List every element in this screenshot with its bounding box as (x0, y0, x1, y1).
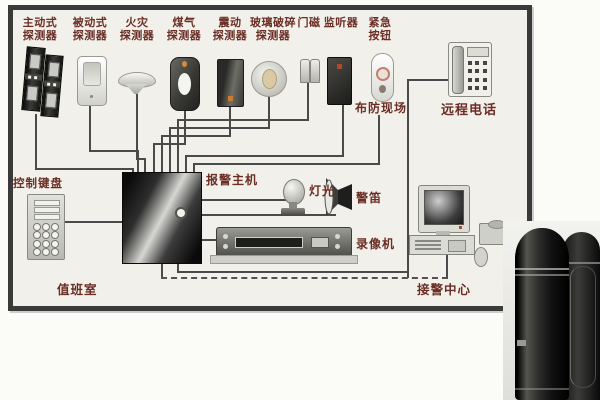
label-line: 震动 (219, 16, 242, 29)
label-line: 监听器 (324, 16, 359, 29)
pir-led (90, 95, 93, 98)
phone-display (467, 47, 489, 57)
keypad-display (34, 200, 60, 206)
beam-window (29, 54, 41, 70)
emergency-button-icon (371, 53, 394, 102)
label-line: 探测器 (23, 29, 58, 42)
wire (184, 106, 186, 143)
wire (185, 155, 344, 157)
case-drive-bay (448, 240, 466, 252)
wire (407, 79, 448, 81)
keypad-buttons (32, 223, 60, 256)
wire (185, 155, 187, 172)
wire (153, 143, 155, 172)
beam-detector-tower-front (515, 228, 569, 400)
mouse-icon (474, 247, 488, 267)
tower-label-plate (517, 340, 526, 346)
wire (161, 135, 163, 172)
label-control-keypad: 控制键盘 (13, 176, 63, 190)
label-line: 煤气 (173, 16, 196, 29)
label-line: 探测器 (256, 29, 291, 42)
beam-window (26, 85, 38, 101)
label-remote-phone: 远程电话 (441, 104, 497, 118)
beam-detector-photo (503, 221, 600, 400)
label-line: 紧急 (369, 16, 392, 29)
glass-break-detector-icon (251, 61, 287, 97)
alarm-host-knob (177, 209, 185, 217)
wire (342, 101, 344, 155)
wire (161, 135, 231, 137)
label-emergency-button: 紧急 按钮 (359, 16, 401, 42)
vcr-icon (216, 227, 352, 257)
label-duty-room: 值班室 (57, 283, 98, 297)
beam-band (25, 73, 42, 80)
pir-window (83, 62, 101, 86)
wire (89, 103, 91, 150)
vibration-detector-icon (217, 59, 244, 107)
case-vent (415, 240, 441, 242)
computer-case-icon (409, 235, 475, 255)
label-alarm-host: 报警主机 (206, 173, 258, 187)
vcr-tape-slot (235, 237, 303, 248)
monitor-screen (424, 190, 464, 225)
vibration-led (228, 96, 233, 101)
case-vent (415, 248, 441, 250)
vcr-panel (311, 237, 329, 248)
security-system-diagram: 主动式 探测器 被动式 探测器 火灾 探测器 煤气 探测器 震动 探测器 玻璃破… (0, 0, 600, 400)
control-keypad-icon (27, 194, 65, 260)
wire (446, 252, 448, 278)
vcr-base (210, 255, 358, 264)
label-armed-site: 布防现场 (355, 101, 407, 115)
door-magnet-icon (300, 59, 310, 83)
alarm-host-icon (122, 172, 202, 264)
label-alarm-center: 接警中心 (417, 283, 471, 297)
wire (177, 119, 179, 172)
passive-detector-icon (77, 56, 107, 106)
light-base (281, 208, 305, 215)
label-line: 探测器 (73, 29, 108, 42)
wire (193, 163, 380, 165)
wire (64, 221, 122, 223)
wire (161, 262, 163, 278)
tower-band (515, 388, 569, 390)
wire (89, 150, 139, 152)
label-line: 探测器 (167, 29, 202, 42)
label-active-detector: 主动式 探测器 (12, 16, 68, 42)
label-siren: 警笛 (356, 191, 382, 205)
wire (200, 214, 336, 216)
label-light: 灯光 (309, 184, 335, 198)
label-line: 按钮 (369, 29, 392, 42)
label-line: 主动式 (23, 16, 58, 29)
label-vcr: 录像机 (356, 237, 395, 251)
wire (200, 199, 288, 201)
phone-handset (452, 46, 464, 94)
vcr-button (223, 234, 228, 239)
wire (193, 163, 195, 172)
emergency-button-dot (379, 85, 386, 93)
wire (177, 119, 309, 121)
gas-sensor-window (178, 73, 191, 95)
monitor-icon (418, 185, 470, 233)
listener-icon (327, 57, 352, 105)
wire (307, 80, 309, 119)
beam-window (48, 62, 60, 78)
glass-break-sensor (262, 69, 277, 89)
tower-band (515, 274, 569, 276)
label-line: 被动式 (73, 16, 108, 29)
phone-keypad (467, 59, 488, 92)
monitor-led (459, 226, 462, 229)
label-listener: 监听器 (317, 16, 365, 29)
vcr-button (223, 244, 228, 249)
wire (35, 114, 37, 168)
wire (200, 239, 217, 241)
vcr-button (335, 234, 340, 239)
door-magnet-icon (310, 59, 320, 83)
tower-panel (570, 266, 596, 388)
wire (268, 96, 270, 127)
case-vent (415, 244, 441, 246)
wire (169, 127, 270, 129)
tower-band (515, 268, 569, 270)
keypad-display (34, 207, 60, 213)
gas-detector-icon (170, 57, 200, 111)
beam-band (44, 80, 60, 87)
wire (35, 168, 134, 170)
gas-flame-indicator (182, 61, 187, 67)
keypad-display (34, 214, 60, 220)
wire-dashed (161, 277, 448, 279)
remote-phone-icon (448, 42, 492, 97)
wire (177, 271, 408, 273)
emergency-button-ring (376, 67, 390, 81)
wire (169, 127, 171, 172)
label-line: 火灾 (126, 16, 149, 29)
wire (144, 158, 146, 172)
listener-led (337, 64, 342, 69)
wire (378, 115, 380, 163)
beam-window (45, 93, 57, 109)
vcr-button (335, 244, 340, 249)
label-line: 探测器 (120, 29, 155, 42)
wire (136, 93, 138, 158)
